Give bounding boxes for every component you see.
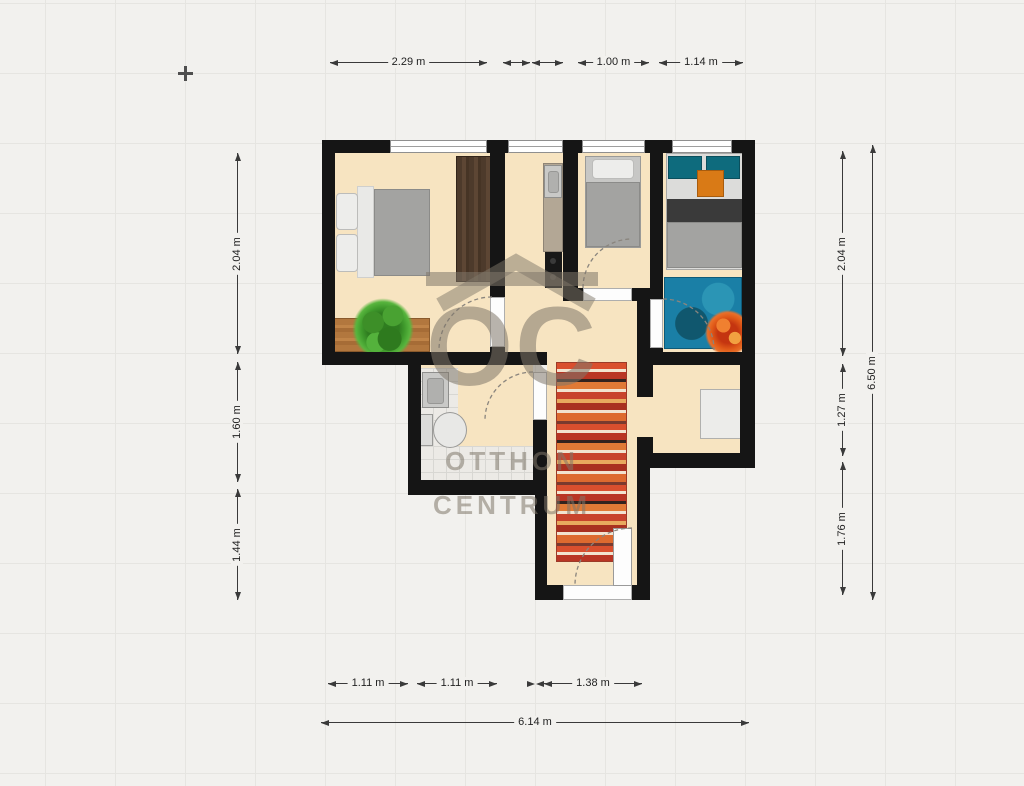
dimension-right-1: 2.04 m: [836, 151, 848, 356]
dimension-right-3: 1.76 m: [836, 462, 848, 595]
toilet-bowl: [433, 412, 467, 448]
wall-storage-bottom: [637, 453, 755, 468]
dimension-top-small-2: [532, 56, 563, 68]
stove-burner: [550, 258, 556, 264]
dimension-top-small-1: [503, 56, 530, 68]
wall-nook-right: [563, 140, 578, 290]
wardrobe: [456, 156, 492, 282]
watermark-line1: OTTHON: [417, 446, 607, 477]
wall-hall-right: [637, 288, 651, 352]
entry-door-threshold: [563, 585, 632, 600]
watermark-logo: OC: [422, 272, 602, 403]
watermark-logo-text: OC: [426, 272, 598, 403]
dimension-right-total: 6.50 m: [866, 145, 878, 600]
orange-pillow: [697, 170, 724, 197]
double-bed-sheet: [357, 186, 374, 278]
double-bed-blanket: [374, 189, 430, 276]
watermark-line2: CENTRUM: [417, 490, 607, 521]
wall-left: [322, 140, 335, 365]
dimension-top-1: 2.29 m: [330, 56, 487, 68]
pillow: [336, 234, 358, 272]
dimension-bottom-small: [527, 677, 544, 689]
dimension-bottom-3: 1.38 m: [544, 677, 642, 689]
wall-right-outer: [742, 140, 755, 365]
folded-blanket: [667, 199, 742, 222]
window: [582, 140, 645, 153]
sink-basin: [548, 171, 559, 193]
dimension-right-2: 1.27 m: [836, 364, 848, 456]
dimension-top-2: 1.00 m: [578, 56, 649, 68]
dimension-bottom-total: 6.14 m: [321, 716, 749, 728]
dimension-bottom-2: 1.11 m: [417, 677, 497, 689]
window: [390, 140, 487, 153]
dimension-left-1: 2.04 m: [231, 153, 243, 354]
appliance: [700, 389, 742, 439]
floor-plan-canvas: OC OTTHON CENTRUM 2.29 m 1.00 m 1.14 m 2…: [0, 0, 1024, 786]
pillow: [592, 159, 634, 179]
wall-storage-right: [740, 352, 755, 468]
entry-door-leaf: [613, 528, 632, 586]
toilet-tank: [420, 414, 433, 446]
wall-storage-left-a: [637, 352, 653, 397]
single-bed-blanket: [586, 182, 640, 247]
bed-blanket: [667, 222, 742, 268]
wall-rightroom-bottom: [637, 352, 755, 365]
dimension-left-3: 1.44 m: [231, 489, 243, 600]
window: [672, 140, 732, 153]
wall-corridor-right: [637, 453, 650, 600]
wall-storage-left-b: [637, 437, 653, 453]
window: [508, 140, 563, 153]
grid-crosshair: [178, 72, 193, 75]
door-threshold-rightroom: [650, 299, 663, 348]
dimension-top-3: 1.14 m: [659, 56, 743, 68]
pillow: [336, 193, 358, 230]
kitchen-sink: [544, 165, 562, 198]
dimension-bottom-1: 1.11 m: [328, 677, 408, 689]
dimension-left-2: 1.60 m: [231, 362, 243, 482]
opening-storage: [637, 397, 653, 437]
